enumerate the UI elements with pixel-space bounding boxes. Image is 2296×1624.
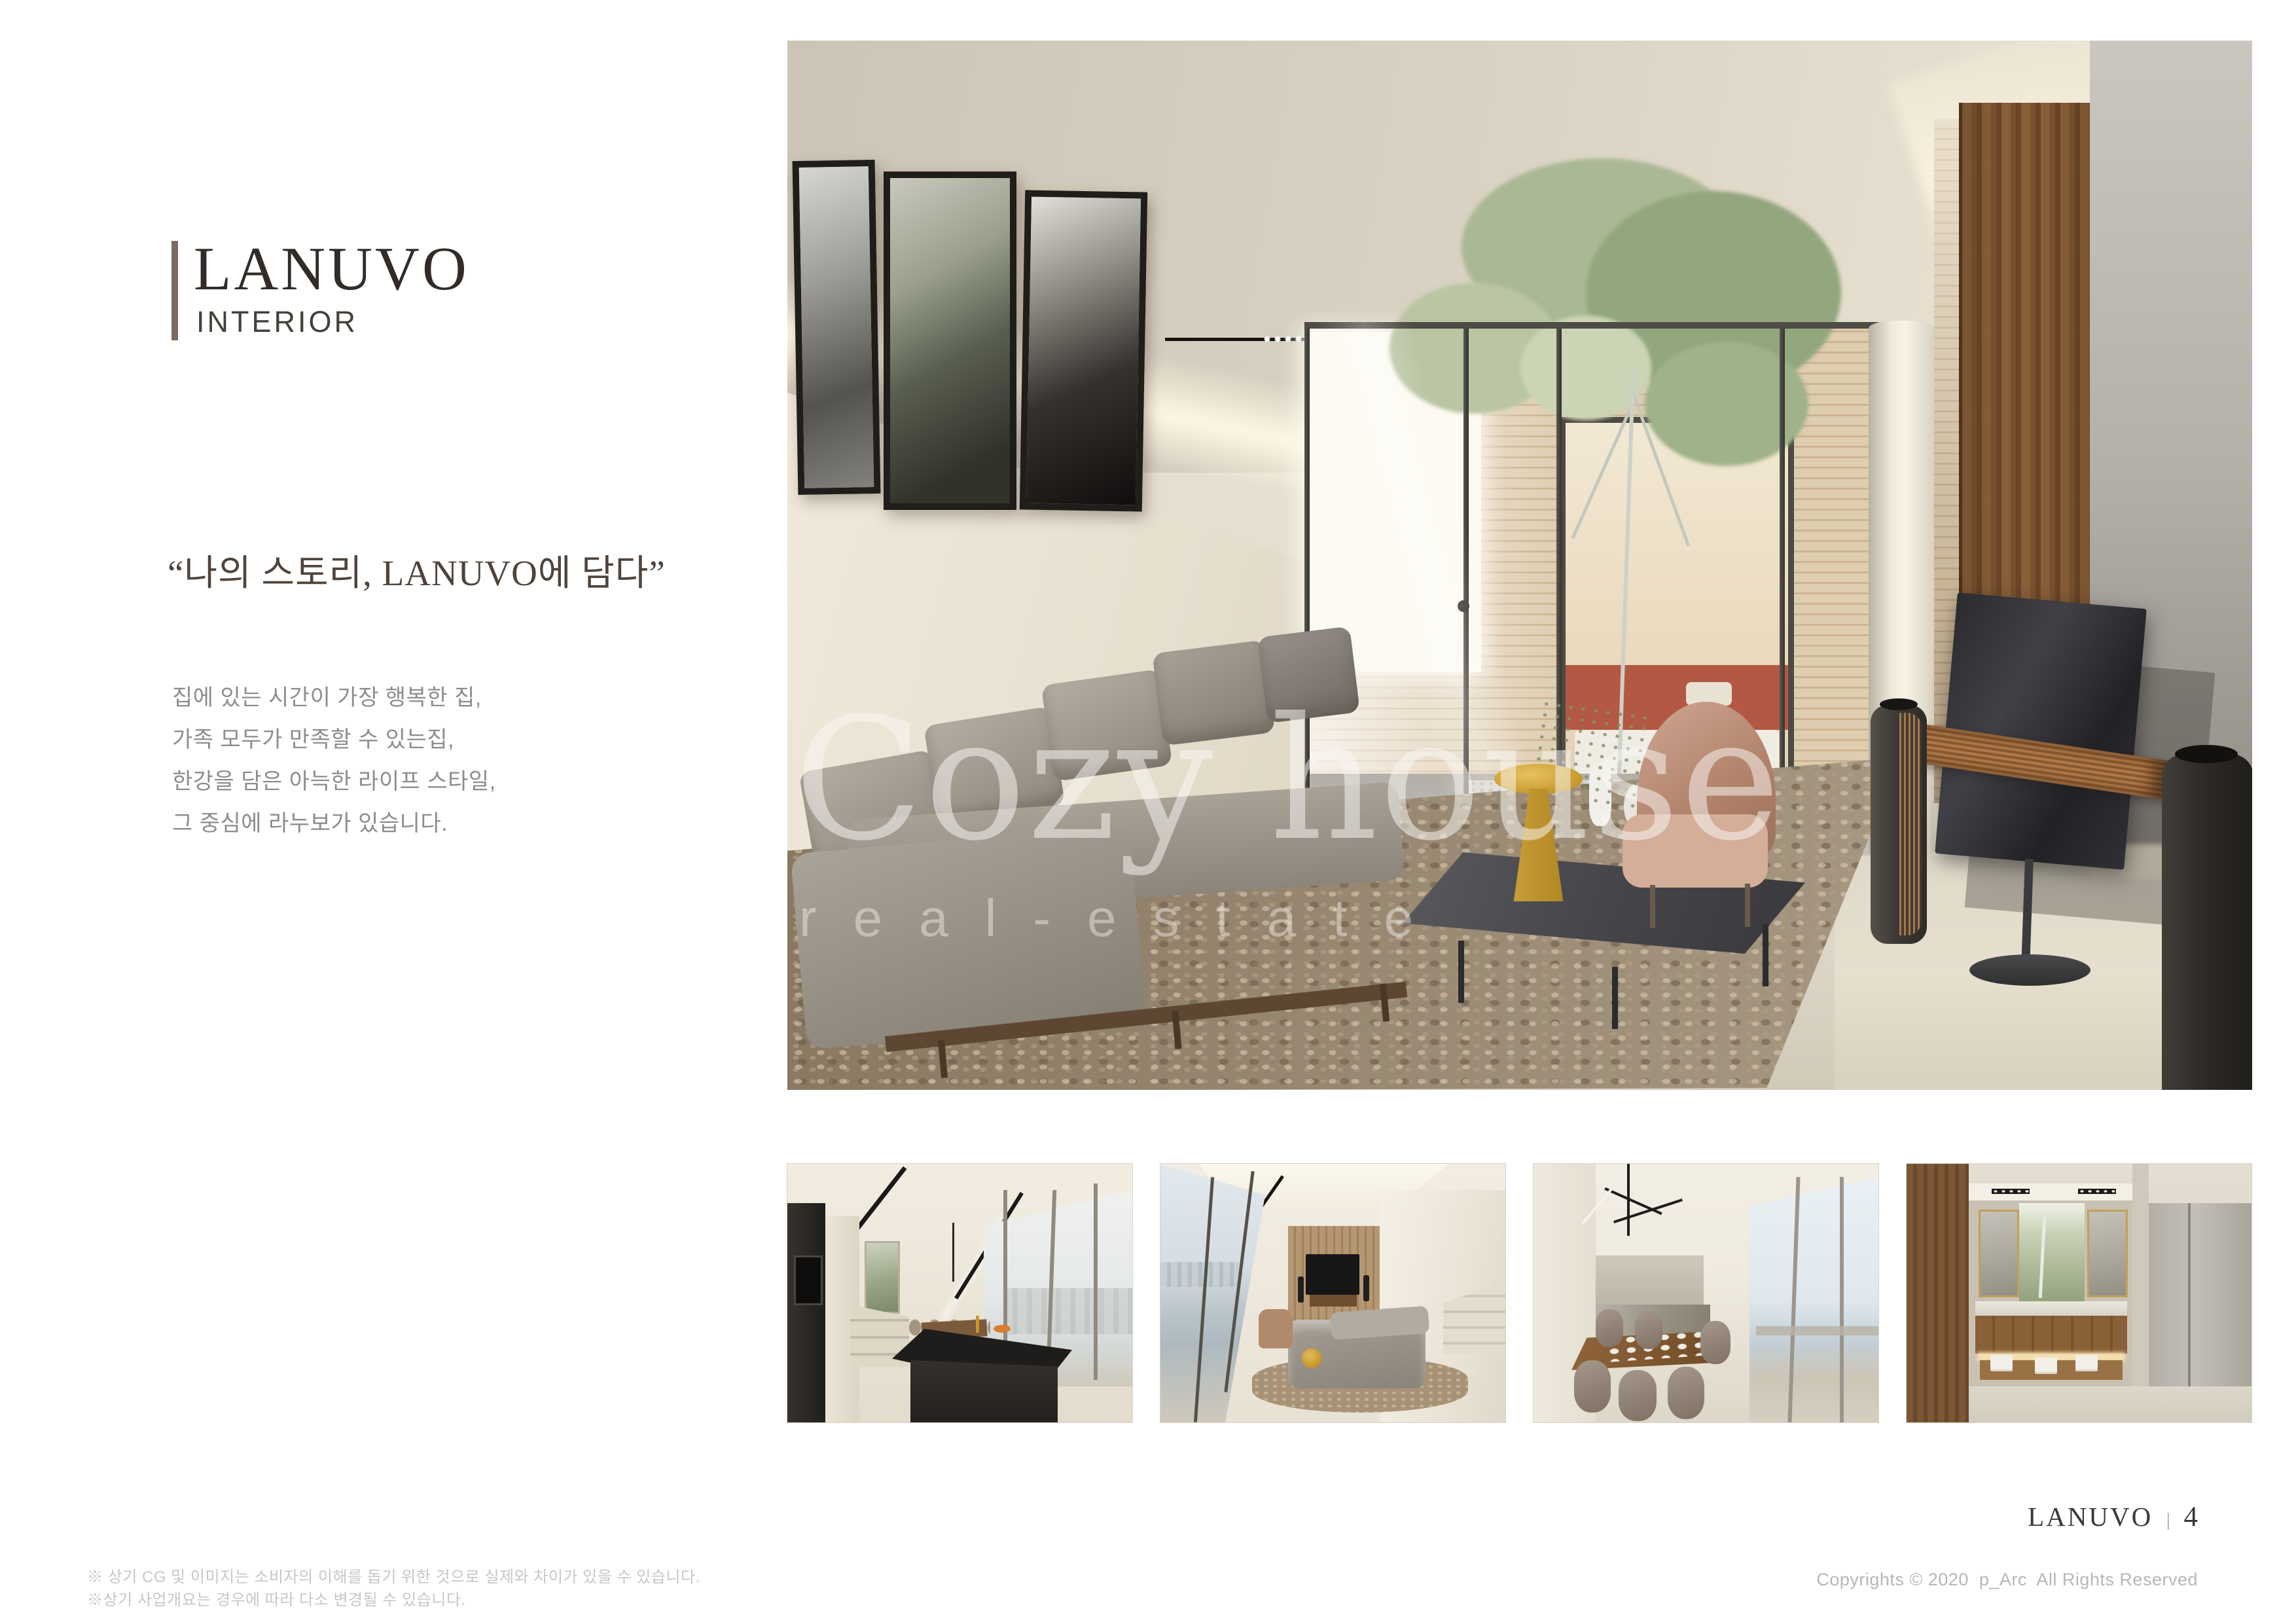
vanity-cabinet [1975,1316,2127,1354]
vanity-counter [1975,1301,2127,1316]
floor [1969,1386,2251,1422]
window-mullion [1840,1177,1844,1422]
shower-glass-edge [2188,1203,2191,1386]
armchair [1259,1309,1293,1348]
tv-stand-base [1969,954,2090,986]
ceiling-light-strip [2078,1189,2116,1194]
floor-speaker-left [1871,705,1927,944]
towel-stack [2035,1358,2057,1372]
dining-chair [1619,1370,1657,1421]
shower-area [2149,1203,2251,1386]
dining-chair [1574,1360,1611,1413]
fruit-bowl [994,1325,1011,1333]
kitchen-rendering-thumbnail [787,1164,1132,1422]
kitchen-island-front [910,1360,1058,1422]
footer-pagination: LANUVO | 4 [2028,1501,2198,1533]
framed-artwork [884,171,1016,510]
speaker-top [2175,745,2238,763]
bridge-view [1756,1326,1878,1335]
window-mullion [1094,1183,1098,1380]
pendant-light [952,1223,954,1282]
intro-paragraph: 집에 있는 시간이 가장 행복한 집, 가족 모두가 만족할 수 있는집, 한강… [172,677,496,844]
branch-chandelier [1613,1199,1683,1223]
living-room-rendering: Cozy house real-estate [787,41,2252,1090]
watermark-title: Cozy house [794,695,1782,864]
page-number: 4 [2184,1501,2198,1533]
intro-line: 한강을 담은 아늑한 라이프 스타일, [172,761,496,803]
armchair-leg [1650,885,1655,928]
armchair-leg [1745,884,1750,927]
page-title: LANUVO [194,237,469,302]
river-view-window [1749,1177,1878,1422]
brochure-page: { "header": { "brand": "LANUVO", "sectio… [0,0,2296,1624]
oven-column [787,1203,825,1422]
bath-vanity-rendering-thumbnail [1907,1164,2251,1422]
accent-bar [171,241,178,340]
watermark-subtitle: real-estate [799,888,1450,948]
dining-chair [1668,1367,1704,1419]
footer-separator: | [2166,1509,2170,1530]
table-leg [1612,967,1618,1029]
wall-art [865,1241,900,1314]
ceiling-light-strip [1992,1189,2030,1194]
intro-line: 가족 모두가 만족할 수 있는집, [172,719,496,761]
gold-side-table [1302,1348,1321,1368]
city-view [1160,1262,1239,1287]
wall-oven [794,1255,823,1305]
towel-stack [2075,1355,2098,1369]
partition-wall [2132,1164,2149,1422]
city-view [1003,1288,1132,1334]
speaker [1298,1276,1304,1303]
garden-view-glass [2019,1203,2085,1301]
framed-artwork [1020,190,1147,511]
framed-artwork [793,160,881,495]
floor-speaker-right [2162,754,2252,1090]
vanity-mirror [1979,1210,2019,1297]
disclaimer: ※ 상기 CG 및 이미지는 소비자의 이해를 돕기 위한 것으로 실제와 차이… [87,1566,700,1612]
intro-line: 그 중심에 라누보가 있습니다. [172,803,496,844]
towel-stack [1990,1355,2013,1369]
footer-brand: LANUVO [2028,1501,2153,1532]
tv-console [1310,1295,1357,1307]
wood-wall [1907,1164,1969,1422]
copyright-notice: Copyrights © 2020 p_Arc All Rights Reser… [1816,1570,2198,1590]
artwork-print [1026,197,1141,505]
television [1306,1254,1359,1295]
headline-quote: “나의 스토리, LANUVO에 담다” [168,543,666,596]
speaker [1363,1275,1369,1301]
disclaimer-line: ※ 상기 CG 및 이미지는 소비자의 이해를 돕기 위한 것으로 실제와 차이… [87,1566,700,1589]
family-room-rendering-thumbnail [1160,1164,1505,1422]
speaker-top [1880,698,1918,710]
dining-chair [1635,1311,1662,1349]
dining-chair [1596,1309,1623,1347]
vanity-mirror [2087,1210,2128,1297]
disclaimer-line: ※상기 사업개요는 경우에 따라 다소 변경될 수 있습니다. [87,1589,700,1612]
gold-faucet [976,1316,979,1333]
artwork-print [890,178,1010,503]
artwork-print [799,166,874,488]
intro-line: 집에 있는 시간이 가장 행복한 집, [172,677,496,719]
dining-chair [1700,1321,1731,1364]
speaker-wood-slats [1899,713,1922,935]
table-leg [1763,924,1768,986]
table-leg [1458,941,1464,1003]
branch-chandelier [1604,1187,1662,1215]
dining-room-rendering-thumbnail [1534,1164,1878,1422]
page-subtitle: INTERIOR [196,305,358,339]
